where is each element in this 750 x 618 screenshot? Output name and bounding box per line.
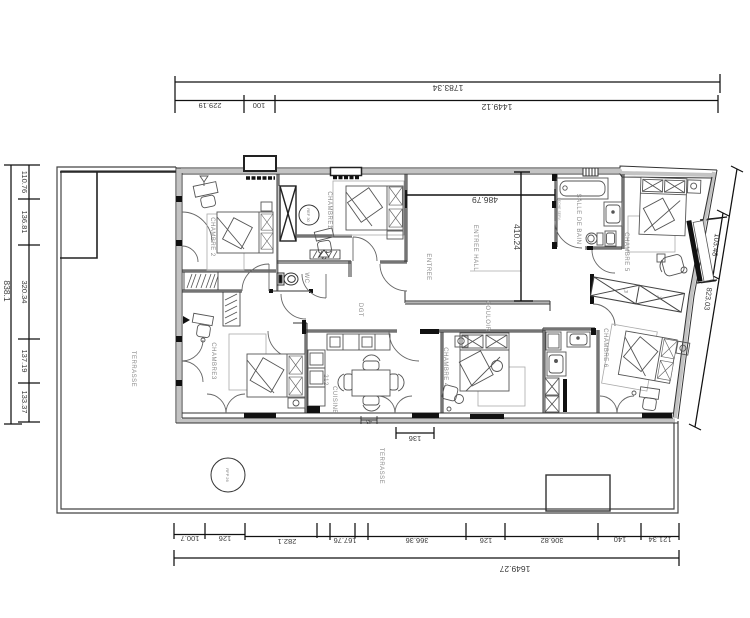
svg-text:CHAMBRE1: CHAMBRE1 [326,191,332,229]
svg-text:CHAMBRE3: CHAMBRE3 [210,342,216,380]
svg-text:ENTREE: ENTREE [425,253,431,280]
svg-text:1783.34: 1783.34 [432,83,463,93]
svg-text:136.81: 136.81 [20,211,29,234]
svg-text:SECHE SERV.: SECHE SERV. [557,197,561,220]
svg-text:126: 126 [219,534,232,543]
svg-text:282.1: 282.1 [278,537,297,546]
svg-text:126: 126 [480,536,493,545]
svg-text:TERRASSE: TERRASSE [378,448,384,484]
svg-text:212: 212 [322,374,328,386]
svg-text:CHAMBRE 2: CHAMBRE 2 [209,217,215,257]
svg-text:CHAMBRE 6: CHAMBRE 6 [602,328,608,368]
svg-text:838.1: 838.1 [2,280,12,302]
svg-text:1449.12: 1449.12 [481,102,512,112]
svg-text:100.7: 100.7 [181,534,200,543]
svg-text:CHAMBRE 5: CHAMBRE 5 [623,232,629,272]
svg-text:306.82: 306.82 [541,536,564,545]
svg-text:CHAMBRE 4: CHAMBRE 4 [442,347,448,387]
svg-text:WC: WC [303,273,309,284]
svg-text:SALLE DE BAIN: SALLE DE BAIN [575,194,581,245]
svg-text:100: 100 [253,101,266,110]
svg-text:366.36: 366.36 [406,536,429,545]
svg-text:140: 140 [614,535,627,544]
svg-text:REF 30: REF 30 [306,208,311,222]
svg-text:TERRASSE: TERRASSE [130,351,136,387]
svg-text:ENTREE HALL: ENTREE HALL [472,225,478,272]
svg-text:RFP 26: RFP 26 [225,468,230,482]
svg-text:CUISINE: CUISINE [331,386,337,414]
svg-text:136: 136 [409,434,422,443]
svg-text:486.79: 486.79 [472,195,498,205]
svg-text:121.34: 121.34 [649,535,672,544]
svg-text:320.34: 320.34 [20,281,29,304]
svg-text:110.76: 110.76 [20,171,29,193]
svg-text:1649.27: 1649.27 [499,564,530,574]
svg-text:133.37: 133.37 [20,391,29,414]
svg-text:167.76: 167.76 [334,536,357,545]
svg-text:43: 43 [366,418,372,424]
svg-text:COULOIR: COULOIR [484,301,490,332]
svg-text:229.19: 229.19 [199,101,222,110]
svg-text:DGT: DGT [357,303,363,317]
svg-text:410.24: 410.24 [512,224,522,250]
svg-text:137.19: 137.19 [20,350,29,373]
